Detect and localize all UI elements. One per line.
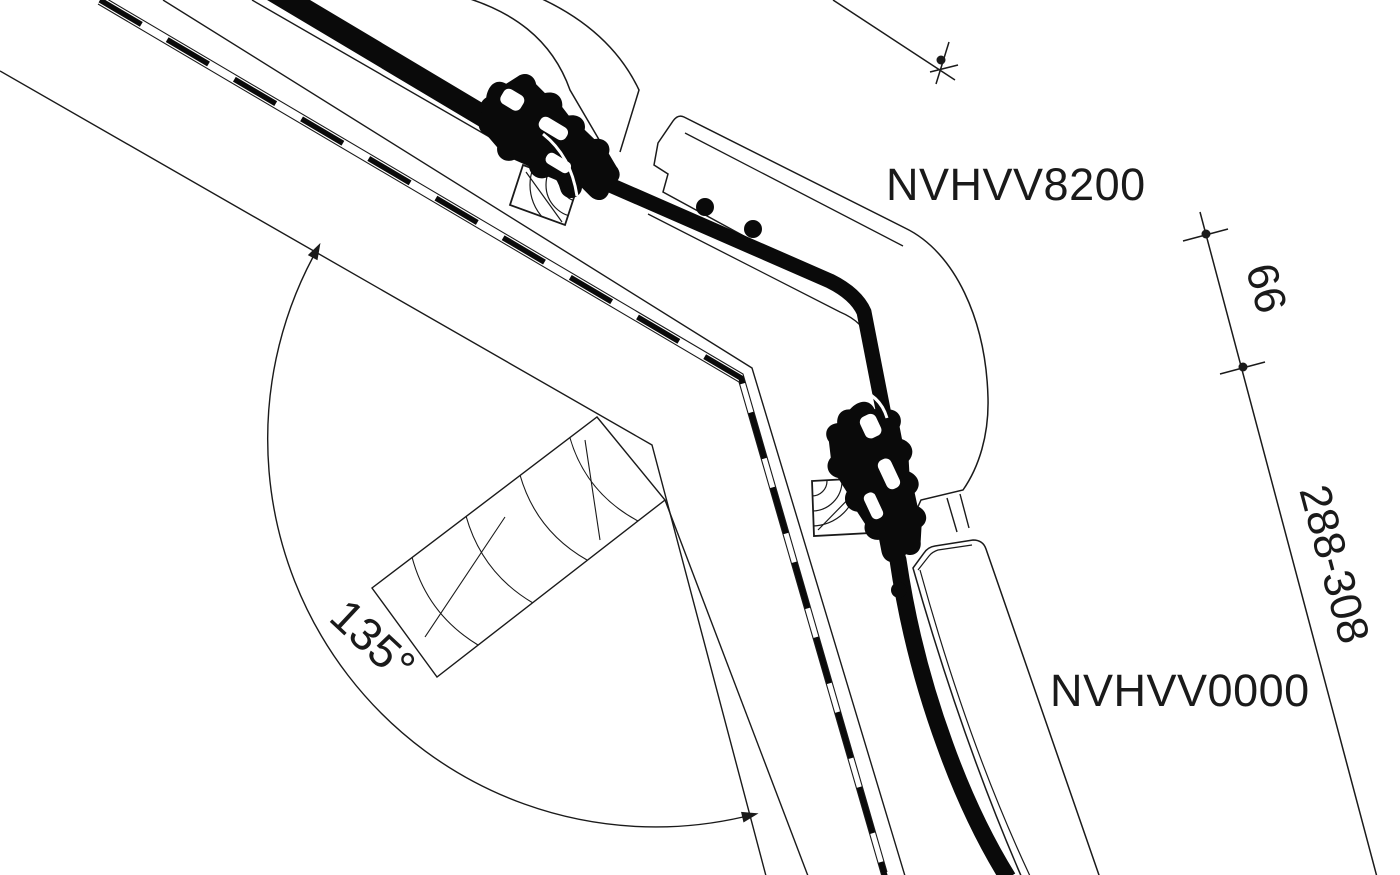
dimension-spacing: 66: [1236, 258, 1296, 318]
cover-connector-tab: [947, 494, 969, 532]
dimension-range: 288-308: [1289, 480, 1378, 649]
dimension-extension-line-top: [833, 0, 955, 80]
technical-drawing-canvas: NVHVV8200 NVHVV0000 66 288-308 135°: [0, 0, 1400, 875]
flashing-detail-drawing: NVHVV8200 NVHVV0000 66 288-308 135°: [0, 0, 1400, 875]
label-lower-profile: NVHVV0000: [1050, 665, 1310, 716]
band-top-companion-line: [252, 0, 500, 143]
rafter-section: [372, 417, 665, 677]
label-upper-profile: NVHVV8200: [886, 159, 1146, 210]
frame-lines: [0, 0, 905, 875]
frame-inner-corner-line: [0, 71, 766, 875]
